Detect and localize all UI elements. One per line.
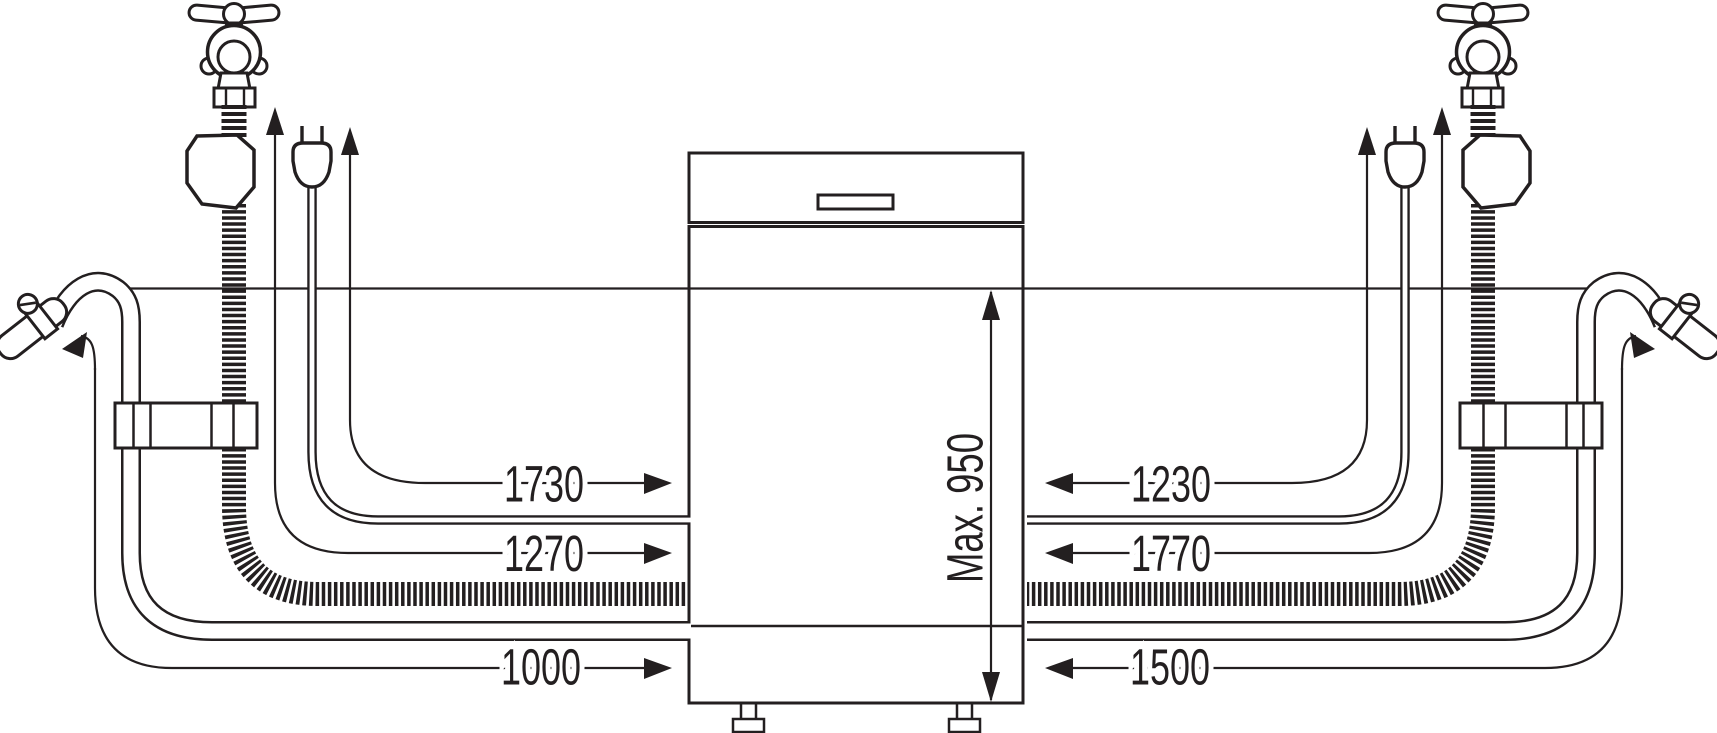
label-length-1230: 1230 (1131, 456, 1211, 513)
label-length-1730: 1730 (504, 456, 584, 513)
label-length-1000: 1000 (501, 639, 581, 696)
label-max-height-950: Max. 950 (937, 433, 994, 583)
dishwasher-installation-diagram: 1730 1270 1000 1230 1770 1500 Max. 950 (0, 0, 1717, 733)
dishwasher-foot-pad (733, 719, 764, 732)
connection-assembly-left (0, 4, 691, 680)
connection-assembly-right (1026, 4, 1717, 680)
label-length-1270: 1270 (504, 525, 584, 582)
label-length-1770: 1770 (1131, 525, 1211, 582)
dishwasher-handle (818, 195, 893, 209)
diagram-drawing: 1730 1270 1000 1230 1770 1500 Max. 950 (0, 0, 1717, 733)
dishwasher-foot-pad (949, 719, 980, 732)
control-panel (689, 153, 1023, 223)
label-length-1500: 1500 (1130, 639, 1210, 696)
